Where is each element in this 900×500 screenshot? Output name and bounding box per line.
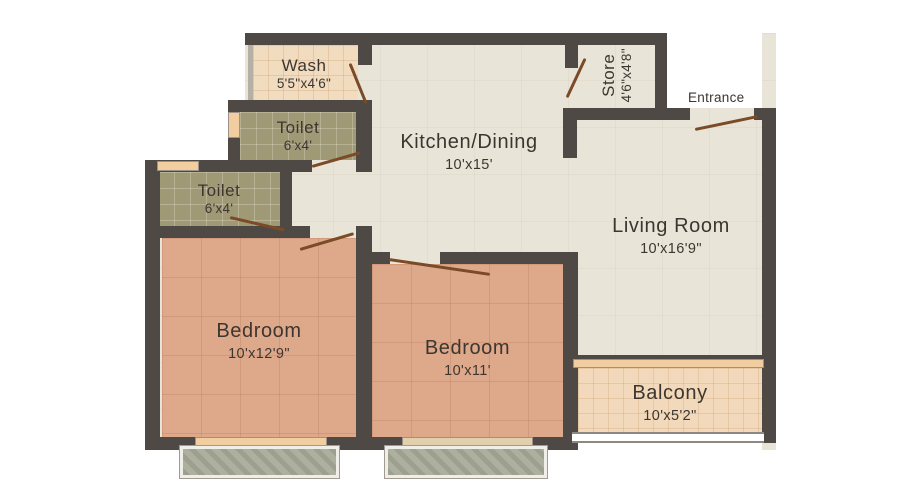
room-name: Balcony <box>632 381 707 406</box>
planter-box-middle <box>385 446 547 478</box>
room-name: Toilet <box>198 180 241 201</box>
outside-area <box>0 33 145 500</box>
room-name: Bedroom <box>216 319 301 344</box>
outside-area <box>776 0 900 500</box>
balcony-railing <box>572 432 764 443</box>
room-dims: 5'5"x4'6" <box>277 76 331 93</box>
wall-toilet-upper-left <box>228 138 240 162</box>
outside-area <box>228 33 245 100</box>
room-dims: 10'x15' <box>445 156 493 174</box>
living-room-label: Living Room 10'x16'9" <box>580 210 762 262</box>
bedroom-left-label: Bedroom 10'x12'9" <box>162 315 356 367</box>
wall-bedroom-middle-top <box>440 252 578 264</box>
wall-toilet-upper-right <box>356 100 372 172</box>
room-dims: 4'6"x4'8" <box>619 48 635 102</box>
room-dims: 10'x11' <box>444 362 491 380</box>
wall-bedroom-middle-top-stub <box>372 252 390 264</box>
store-label-rotated: Store 4'6"x4'8" <box>599 48 636 102</box>
balcony-label: Balcony 10'x5'2" <box>578 378 762 428</box>
wall-kitchen-living-stub <box>563 108 577 158</box>
window-toilet-lower <box>157 161 199 171</box>
bedroom-middle-label: Bedroom 10'x11' <box>372 332 563 384</box>
planter-box-left <box>180 446 339 478</box>
wall-toilet-upper-top <box>228 100 372 112</box>
floor-plan-canvas: Wash 5'5"x4'6" Toilet 6'x4' Toilet 6'x4'… <box>0 0 900 500</box>
window-bedroom-middle <box>402 437 533 446</box>
kitchen-dining-label: Kitchen/Dining 10'x15' <box>375 126 563 178</box>
room-dims: 10'x12'9" <box>228 345 290 363</box>
room-name: Store <box>599 53 619 96</box>
wall-right <box>762 108 776 443</box>
wall-bedroom-divider <box>356 226 372 450</box>
window-bedroom-left <box>195 437 327 446</box>
wall-store-left-stub <box>565 33 578 68</box>
room-name: Kitchen/Dining <box>400 130 537 155</box>
entrance-label: Entrance <box>688 90 744 105</box>
room-name: Wash <box>282 55 327 76</box>
toilet-lower-label: Toilet 6'x4' <box>158 174 280 224</box>
room-dims: 6'x4' <box>205 201 233 218</box>
toilet-upper-label: Toilet 6'x4' <box>240 114 356 158</box>
sliding-door-balcony <box>573 359 764 368</box>
wall-toilet-lower-bottom <box>145 226 310 238</box>
wall-toilet-lower-right <box>280 172 292 226</box>
room-name: Toilet <box>277 117 320 138</box>
wall-under-store <box>563 108 690 120</box>
window-toilet-upper <box>228 112 240 138</box>
outside-area <box>0 0 900 33</box>
room-dims: 6'x4' <box>284 138 312 155</box>
room-name: Living Room <box>612 214 730 239</box>
wash-label: Wash 5'5"x4'6" <box>250 50 358 98</box>
room-dims: 10'x16'9" <box>640 240 702 258</box>
wall-bedroom-middle-right <box>563 252 578 450</box>
room-dims: 10'x5'2" <box>643 407 696 425</box>
outside-area <box>578 443 762 450</box>
store-label: Store 4'6"x4'8" <box>578 42 656 108</box>
wall-wash-right-stub <box>358 45 372 65</box>
wall-store-right <box>655 33 667 120</box>
outside-area <box>145 33 228 160</box>
room-name: Bedroom <box>425 336 510 361</box>
